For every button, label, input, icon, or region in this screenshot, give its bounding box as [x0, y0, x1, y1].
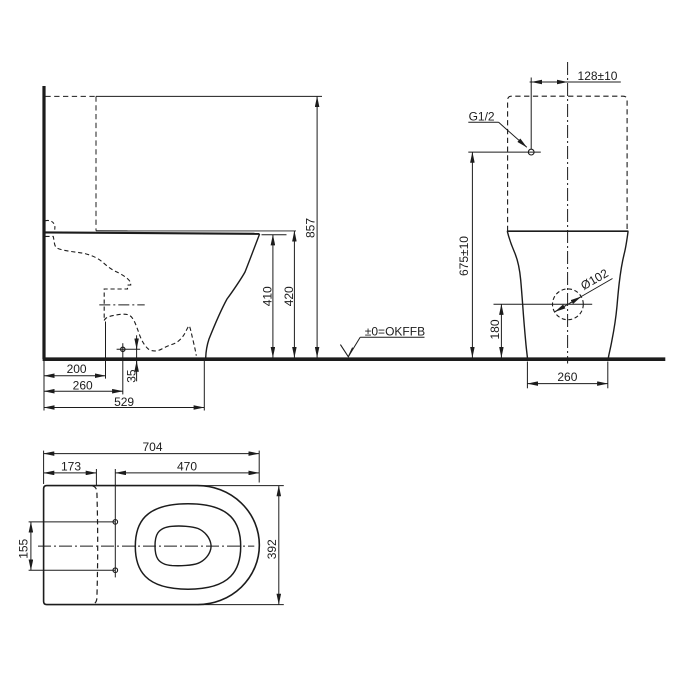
svg-text:35: 35 [124, 369, 138, 383]
svg-text:470: 470 [177, 459, 197, 473]
svg-text:392: 392 [265, 539, 279, 559]
svg-text:173: 173 [61, 459, 81, 473]
svg-text:420: 420 [282, 286, 296, 306]
svg-text:155: 155 [17, 538, 31, 558]
svg-text:200: 200 [67, 362, 87, 376]
svg-text:857: 857 [303, 218, 317, 238]
svg-text:180: 180 [488, 319, 502, 339]
svg-text:±0=OKFFB: ±0=OKFFB [365, 325, 425, 339]
svg-text:128±10: 128±10 [578, 69, 618, 83]
svg-text:410: 410 [261, 286, 275, 306]
svg-text:G1/2: G1/2 [469, 110, 495, 124]
svg-text:260: 260 [557, 370, 577, 384]
svg-text:704: 704 [142, 440, 162, 454]
svg-text:260: 260 [73, 378, 93, 392]
svg-text:675±10: 675±10 [457, 236, 471, 276]
svg-text:529: 529 [114, 395, 134, 409]
